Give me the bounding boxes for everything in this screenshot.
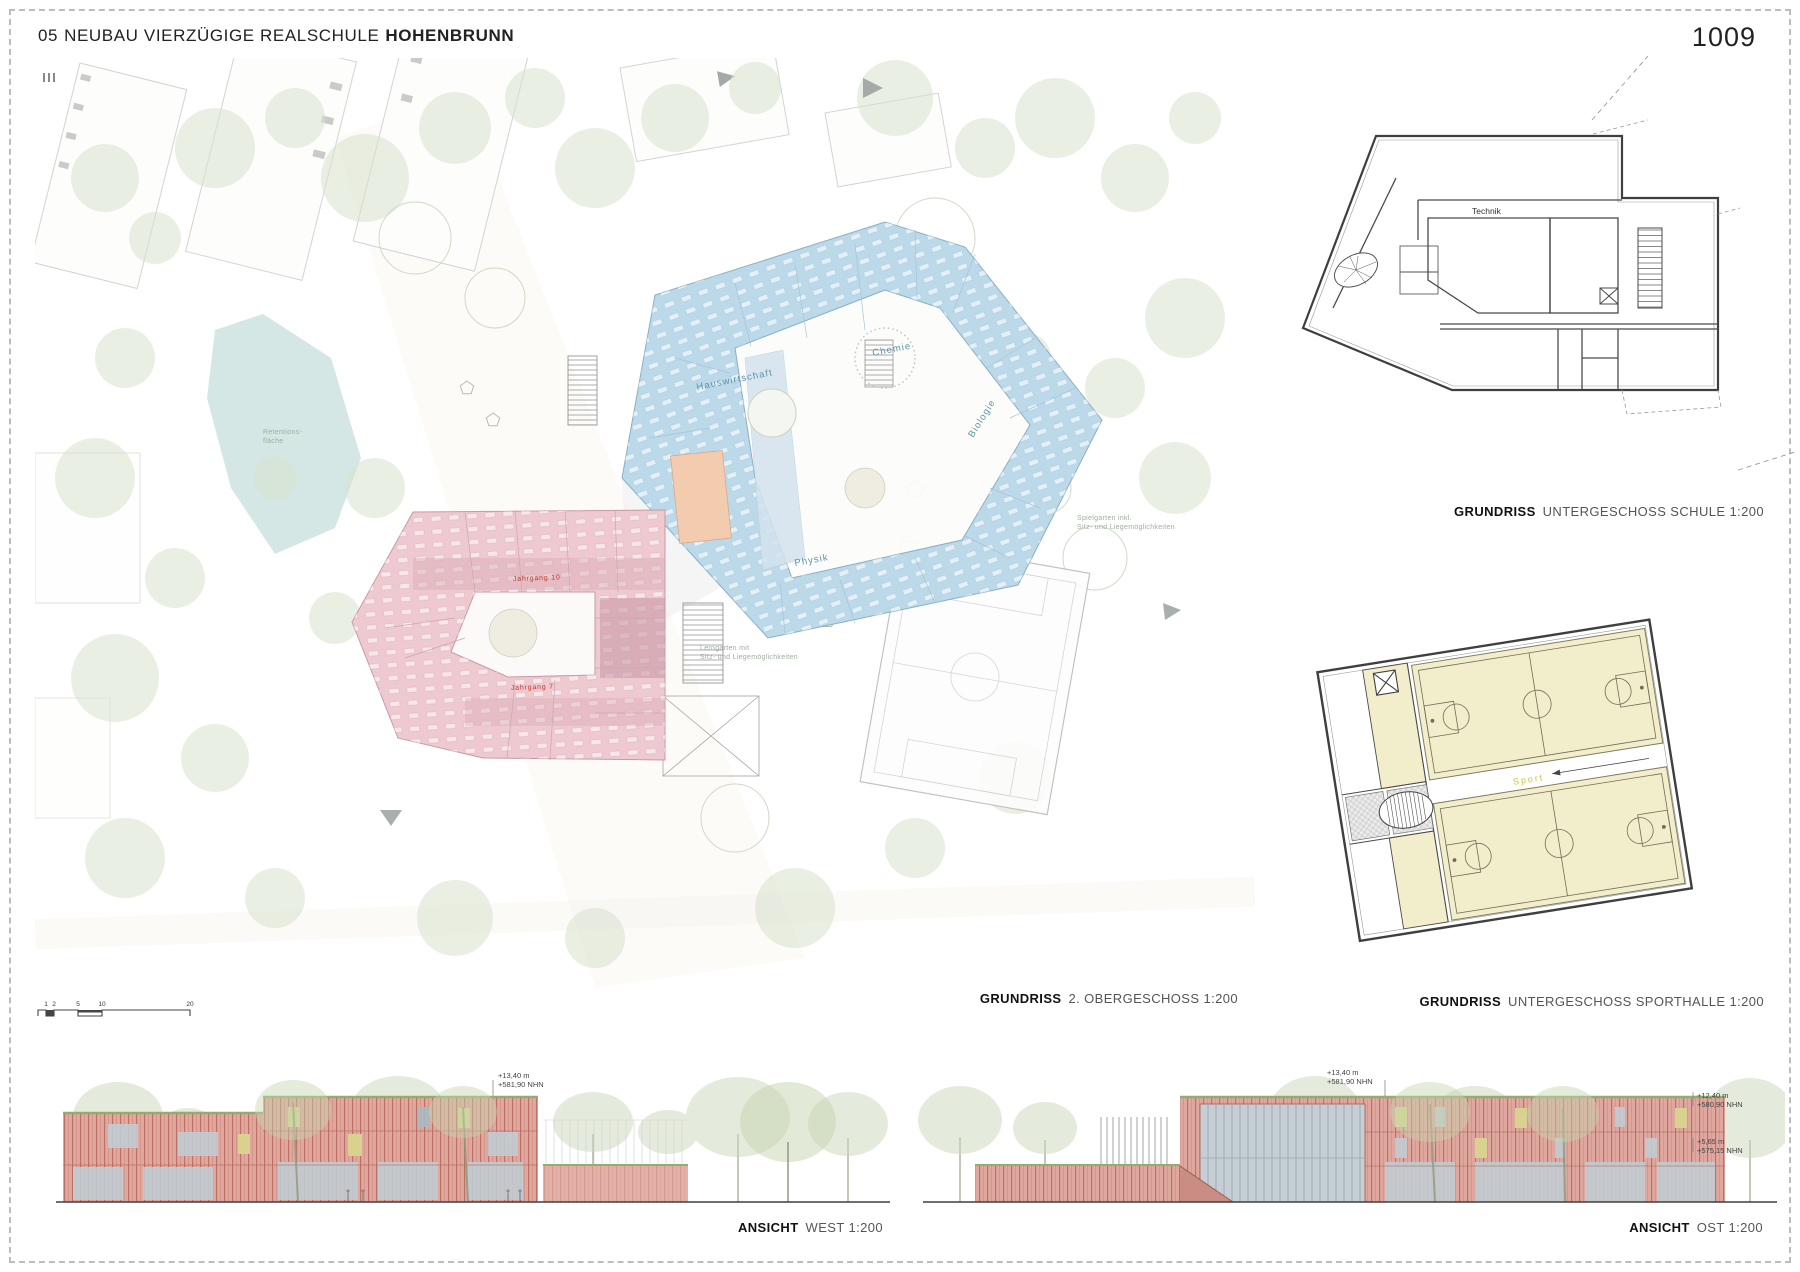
west-level-text: +13,40 m [498,1071,529,1080]
elevation-ost: +13,40 m +581,90 NHN +12,40 m +580,90 NH… [915,1062,1785,1214]
schule-stair [1638,228,1662,308]
scale-tick-5: 5 [76,1001,80,1008]
label-pond-line1: Retentions- [263,429,302,436]
scale-tick-10: 10 [98,1001,106,1008]
pink-wing: Jahrgang 10 Jahrgang 7 [352,510,665,760]
project-number: 05 [38,26,58,45]
presentation-sheet: 05NEUBAU VIERZÜGIGE REALSCHULEHOHENBRUNN… [0,0,1800,1272]
ost-level2-text: +12,40 m [1697,1091,1728,1100]
caption-ansicht-west-bold: ANSICHT [738,1220,799,1235]
west-stair [568,356,597,425]
plan-ug-schule: Technik [1300,118,1740,423]
label-garden-right-line1: Spielgarten inkl. [1077,515,1132,522]
pink-corridor-bottom [465,698,665,726]
west-nhn-text: +581,90 NHN [498,1080,544,1089]
caption-ug-schule-rest: UNTERGESCHOSS SCHULE 1:200 [1543,504,1764,519]
scale-numbers: 1 2 5 10 20 [44,1001,194,1008]
west-annotation: +13,40 m +581,90 NHN [493,1071,544,1096]
courtyard-sand [845,468,885,508]
page-title: 05NEUBAU VIERZÜGIGE REALSCHULEHOHENBRUNN [38,26,514,46]
ost-nhn2-text: +580,90 NHN [1697,1100,1743,1109]
sport-elevator [1373,670,1398,695]
sport-rotated-plan: Sport [1317,620,1691,941]
label-pond-line2: fläche [263,438,283,445]
caption-ug-schule-bold: GRUNDRISS [1454,504,1536,519]
orange-room [671,451,732,544]
caption-ansicht-ost-bold: ANSICHT [1629,1220,1690,1235]
ost-low-wing [975,1166,1180,1202]
corner-ticks [43,73,55,82]
caption-ug-sporthalle-bold: GRUNDRISS [1419,994,1501,1009]
caption-grundriss-2og-rest: 2. OBERGESCHOSS 1:200 [1068,991,1238,1006]
site-plan-2og: Retentions- fläche Spielgarten inkl. Sit… [35,58,1255,993]
caption-ug-sporthalle: GRUNDRISSUNTERGESCHOSS SPORTHALLE 1:200 [1419,994,1764,1009]
caption-ansicht-west: ANSICHTWEST 1:200 [738,1220,883,1235]
project-city: HOHENBRUNN [385,26,514,45]
ost-building [975,1097,1725,1202]
pink-courtyard-tree [489,609,537,657]
scale-tick-1: 1 [44,1001,48,1008]
scale-tick-20: 20 [186,1001,194,1008]
caption-ansicht-ost: ANSICHTOST 1:200 [1629,1220,1763,1235]
caption-grundriss-2og: GRUNDRISS2. OBERGESCHOSS 1:200 [980,991,1238,1006]
label-technik: Technik [1472,206,1502,216]
label-garden-right-line2: Sitz- und Liegemöglichkeiten [1077,524,1175,531]
pink-dark-rooms [600,598,665,678]
project-title: NEUBAU VIERZÜGIGE REALSCHULE [64,26,379,45]
elevation-west: +13,40 m +581,90 NHN [48,1062,898,1214]
ost-level3-text: +5,65 m [1697,1137,1724,1146]
ost-level1-text: +13,40 m [1327,1068,1358,1077]
pink-corridor-top [413,558,665,590]
ost-glass-block [1200,1104,1365,1202]
caption-ansicht-ost-rest: OST 1:200 [1697,1220,1763,1235]
sheet-number: 1009 [1692,22,1756,53]
plan-ug-sporthalle: Sport [1285,605,1720,960]
ost-nhn3-text: +575,15 NHN [1697,1146,1743,1155]
caption-ug-schule: GRUNDRISSUNTERGESCHOSS SCHULE 1:200 [1454,504,1764,519]
main-stair [683,603,723,683]
caption-ansicht-west-rest: WEST 1:200 [806,1220,883,1235]
courtyard-tree-1 [748,389,796,437]
ost-nhn1-text: +581,90 NHN [1327,1077,1373,1086]
caption-grundriss-2og-bold: GRUNDRISS [980,991,1062,1006]
scale-tick-2: 2 [52,1001,56,1008]
scale-bar: 1 2 5 10 20 [36,994,196,1020]
caption-ug-sporthalle-rest: UNTERGESCHOSS SPORTHALLE 1:200 [1508,994,1764,1009]
